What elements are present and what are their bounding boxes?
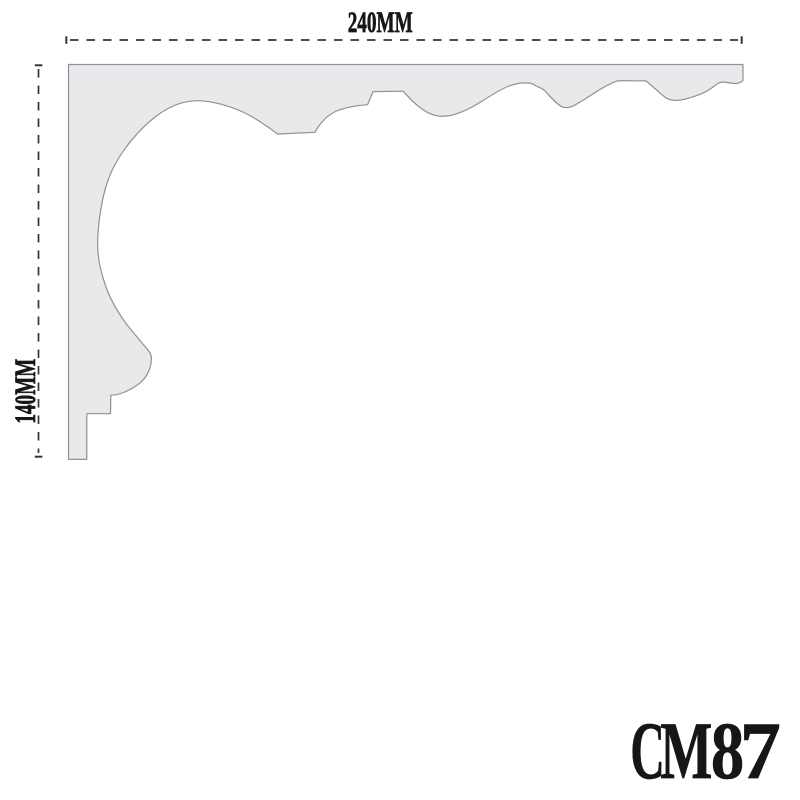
svg-text:240MM: 240MM xyxy=(348,7,413,39)
svg-text:7: 7 xyxy=(740,705,781,796)
svg-text:M: M xyxy=(660,706,712,796)
svg-text:140MM: 140MM xyxy=(10,359,42,424)
